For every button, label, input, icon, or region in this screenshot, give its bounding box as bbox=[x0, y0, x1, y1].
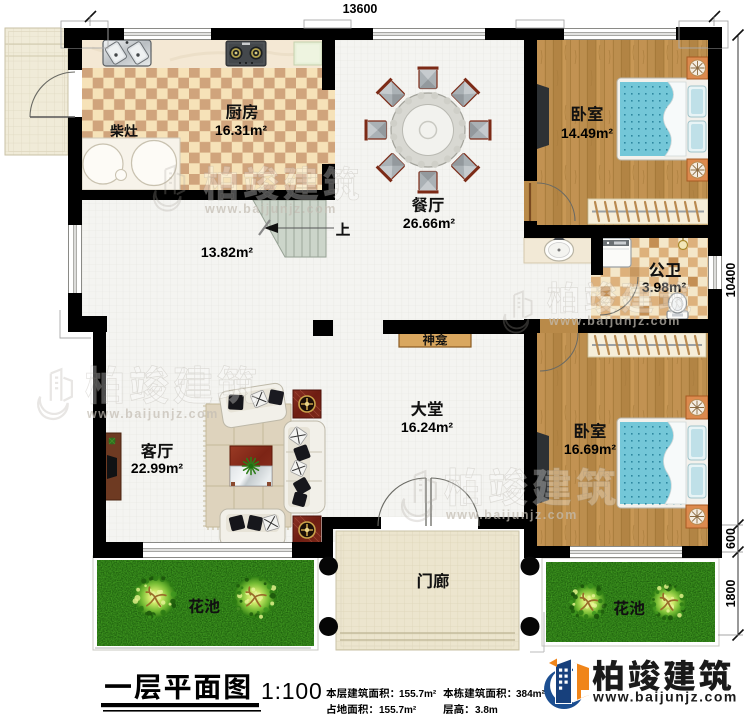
svg-text:www.baijunjz.com: www.baijunjz.com bbox=[86, 407, 219, 421]
svg-text:14.49m²: 14.49m² bbox=[561, 125, 613, 141]
svg-text:16.69m²: 16.69m² bbox=[564, 441, 616, 457]
svg-text:155.7m²: 155.7m² bbox=[379, 705, 417, 716]
svg-text:16.31m²: 16.31m² bbox=[215, 122, 267, 138]
svg-text:3.8m: 3.8m bbox=[475, 705, 498, 716]
svg-text:22.99m²: 22.99m² bbox=[131, 460, 183, 476]
svg-text:www.baijunjz.com: www.baijunjz.com bbox=[204, 202, 337, 216]
svg-text:10400: 10400 bbox=[724, 263, 738, 298]
svg-text:1:100: 1:100 bbox=[261, 678, 323, 704]
svg-text:16.24m²: 16.24m² bbox=[401, 419, 453, 435]
svg-text:1800: 1800 bbox=[724, 580, 738, 608]
svg-text:600: 600 bbox=[724, 528, 738, 549]
svg-text:www.baijunjz.com: www.baijunjz.com bbox=[592, 689, 738, 705]
svg-text:www.baijunjz.com: www.baijunjz.com bbox=[445, 508, 578, 522]
svg-text:26.66m²: 26.66m² bbox=[403, 215, 455, 231]
svg-text:www.baijunjz.com: www.baijunjz.com bbox=[548, 314, 681, 328]
svg-text:155.7m²: 155.7m² bbox=[399, 689, 437, 700]
svg-text:13600: 13600 bbox=[343, 2, 378, 16]
svg-text:384m²: 384m² bbox=[516, 689, 546, 700]
svg-text:13.82m²: 13.82m² bbox=[201, 244, 253, 260]
